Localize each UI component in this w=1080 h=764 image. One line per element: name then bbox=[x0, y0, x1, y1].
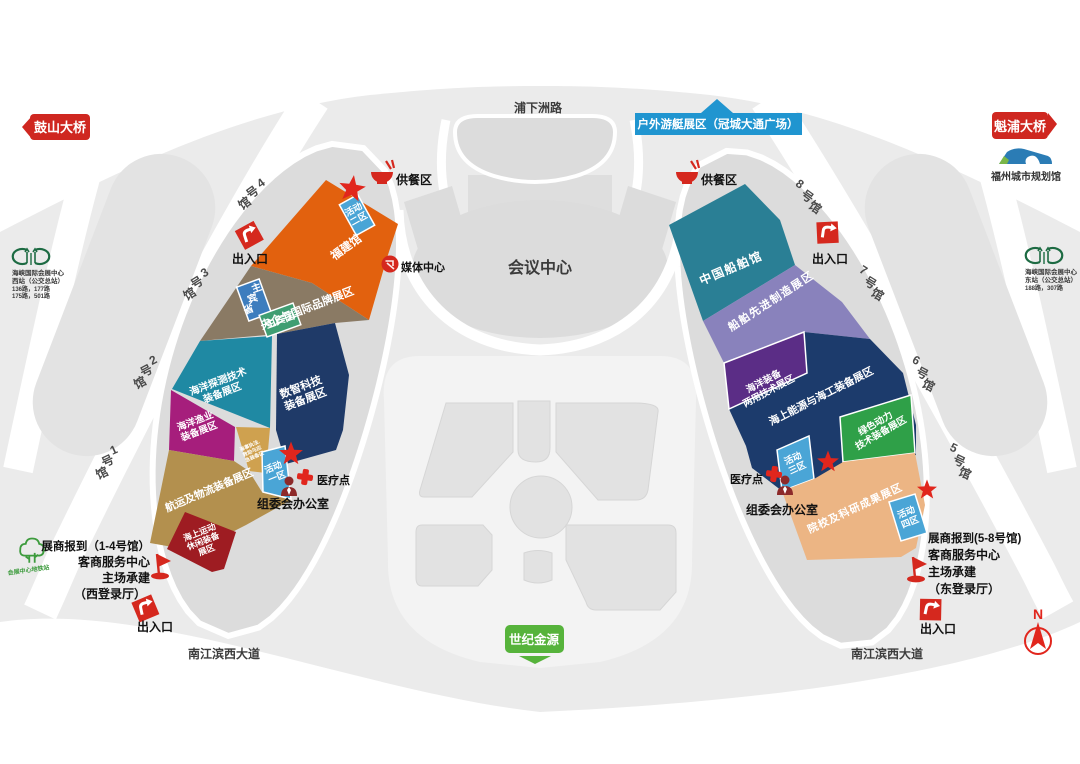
svg-text:鼓山大桥: 鼓山大桥 bbox=[34, 120, 87, 135]
svg-text:户外游艇展区（冠城大通广场）: 户外游艇展区（冠城大通广场） bbox=[638, 117, 799, 131]
svg-text:客商服务中心: 客商服务中心 bbox=[77, 554, 150, 569]
svg-text:供餐区: 供餐区 bbox=[700, 172, 737, 187]
svg-text:西站（公交总站）: 西站（公交总站） bbox=[12, 276, 64, 285]
svg-text:组委会办公室: 组委会办公室 bbox=[257, 496, 329, 511]
svg-text:主场承建: 主场承建 bbox=[102, 570, 151, 585]
svg-text:南江滨西大道: 南江滨西大道 bbox=[851, 646, 923, 661]
svg-text:出入口: 出入口 bbox=[137, 619, 173, 634]
svg-text:东站（公交总站）: 东站（公交总站） bbox=[1025, 275, 1077, 284]
svg-text:188路，307路: 188路，307路 bbox=[1025, 284, 1064, 292]
svg-text:世纪金源: 世纪金源 bbox=[509, 632, 560, 647]
svg-text:N: N bbox=[1033, 606, 1043, 622]
svg-text:主场承建: 主场承建 bbox=[928, 564, 977, 579]
svg-text:出入口: 出入口 bbox=[812, 251, 848, 266]
svg-text:海峡国际会展中心: 海峡国际会展中心 bbox=[1025, 267, 1078, 276]
svg-text:魁浦大桥: 魁浦大桥 bbox=[994, 119, 1047, 134]
svg-text:展商报到（1-4号馆）: 展商报到（1-4号馆） bbox=[40, 539, 150, 553]
svg-text:浦下洲路: 浦下洲路 bbox=[514, 100, 563, 115]
svg-text:供餐区: 供餐区 bbox=[395, 172, 432, 187]
svg-text:客商服务中心: 客商服务中心 bbox=[927, 547, 1000, 562]
svg-text:136路，177路: 136路，177路 bbox=[12, 285, 51, 293]
svg-text:（西登录厅）: （西登录厅） bbox=[74, 586, 146, 601]
svg-text:媒体中心: 媒体中心 bbox=[400, 260, 445, 274]
svg-text:组委会办公室: 组委会办公室 bbox=[746, 502, 818, 517]
svg-text:175路，501路: 175路，501路 bbox=[12, 292, 51, 300]
svg-text:展商报到(5-8号馆): 展商报到(5-8号馆) bbox=[927, 531, 1021, 545]
svg-text:出入口: 出入口 bbox=[232, 251, 268, 266]
svg-text:（东登录厅）: （东登录厅） bbox=[928, 581, 1000, 596]
svg-text:会议中心: 会议中心 bbox=[508, 258, 572, 277]
svg-text:南江滨西大道: 南江滨西大道 bbox=[188, 646, 260, 661]
svg-text:福州城市规划馆: 福州城市规划馆 bbox=[990, 170, 1061, 183]
svg-text:出入口: 出入口 bbox=[920, 621, 956, 636]
svg-text:海峡国际会展中心: 海峡国际会展中心 bbox=[12, 268, 65, 277]
svg-text:医疗点: 医疗点 bbox=[730, 472, 763, 486]
svg-text:医疗点: 医疗点 bbox=[317, 473, 350, 487]
